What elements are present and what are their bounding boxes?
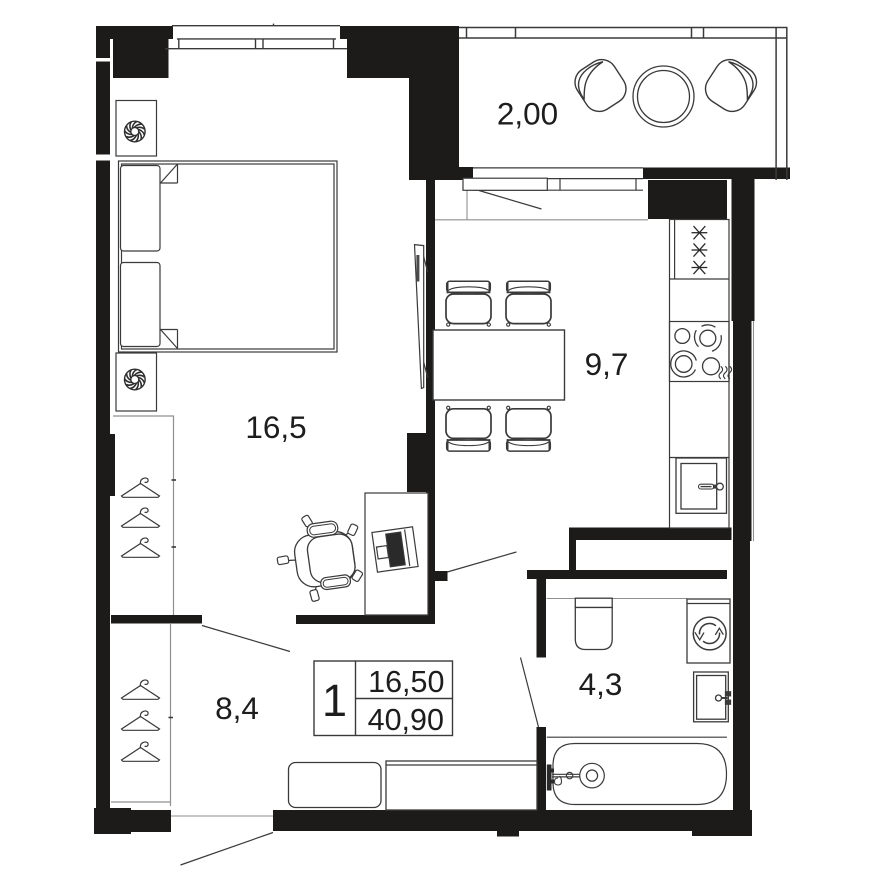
- svg-text:1: 1: [322, 675, 347, 726]
- svg-text:16,5: 16,5: [245, 409, 306, 445]
- svg-text:8,4: 8,4: [215, 690, 259, 726]
- svg-text:40,90: 40,90: [368, 703, 444, 737]
- svg-text:16,50: 16,50: [368, 665, 444, 699]
- svg-text:4,3: 4,3: [579, 666, 623, 702]
- svg-text:9,7: 9,7: [585, 346, 629, 382]
- svg-text:2,00: 2,00: [497, 96, 558, 132]
